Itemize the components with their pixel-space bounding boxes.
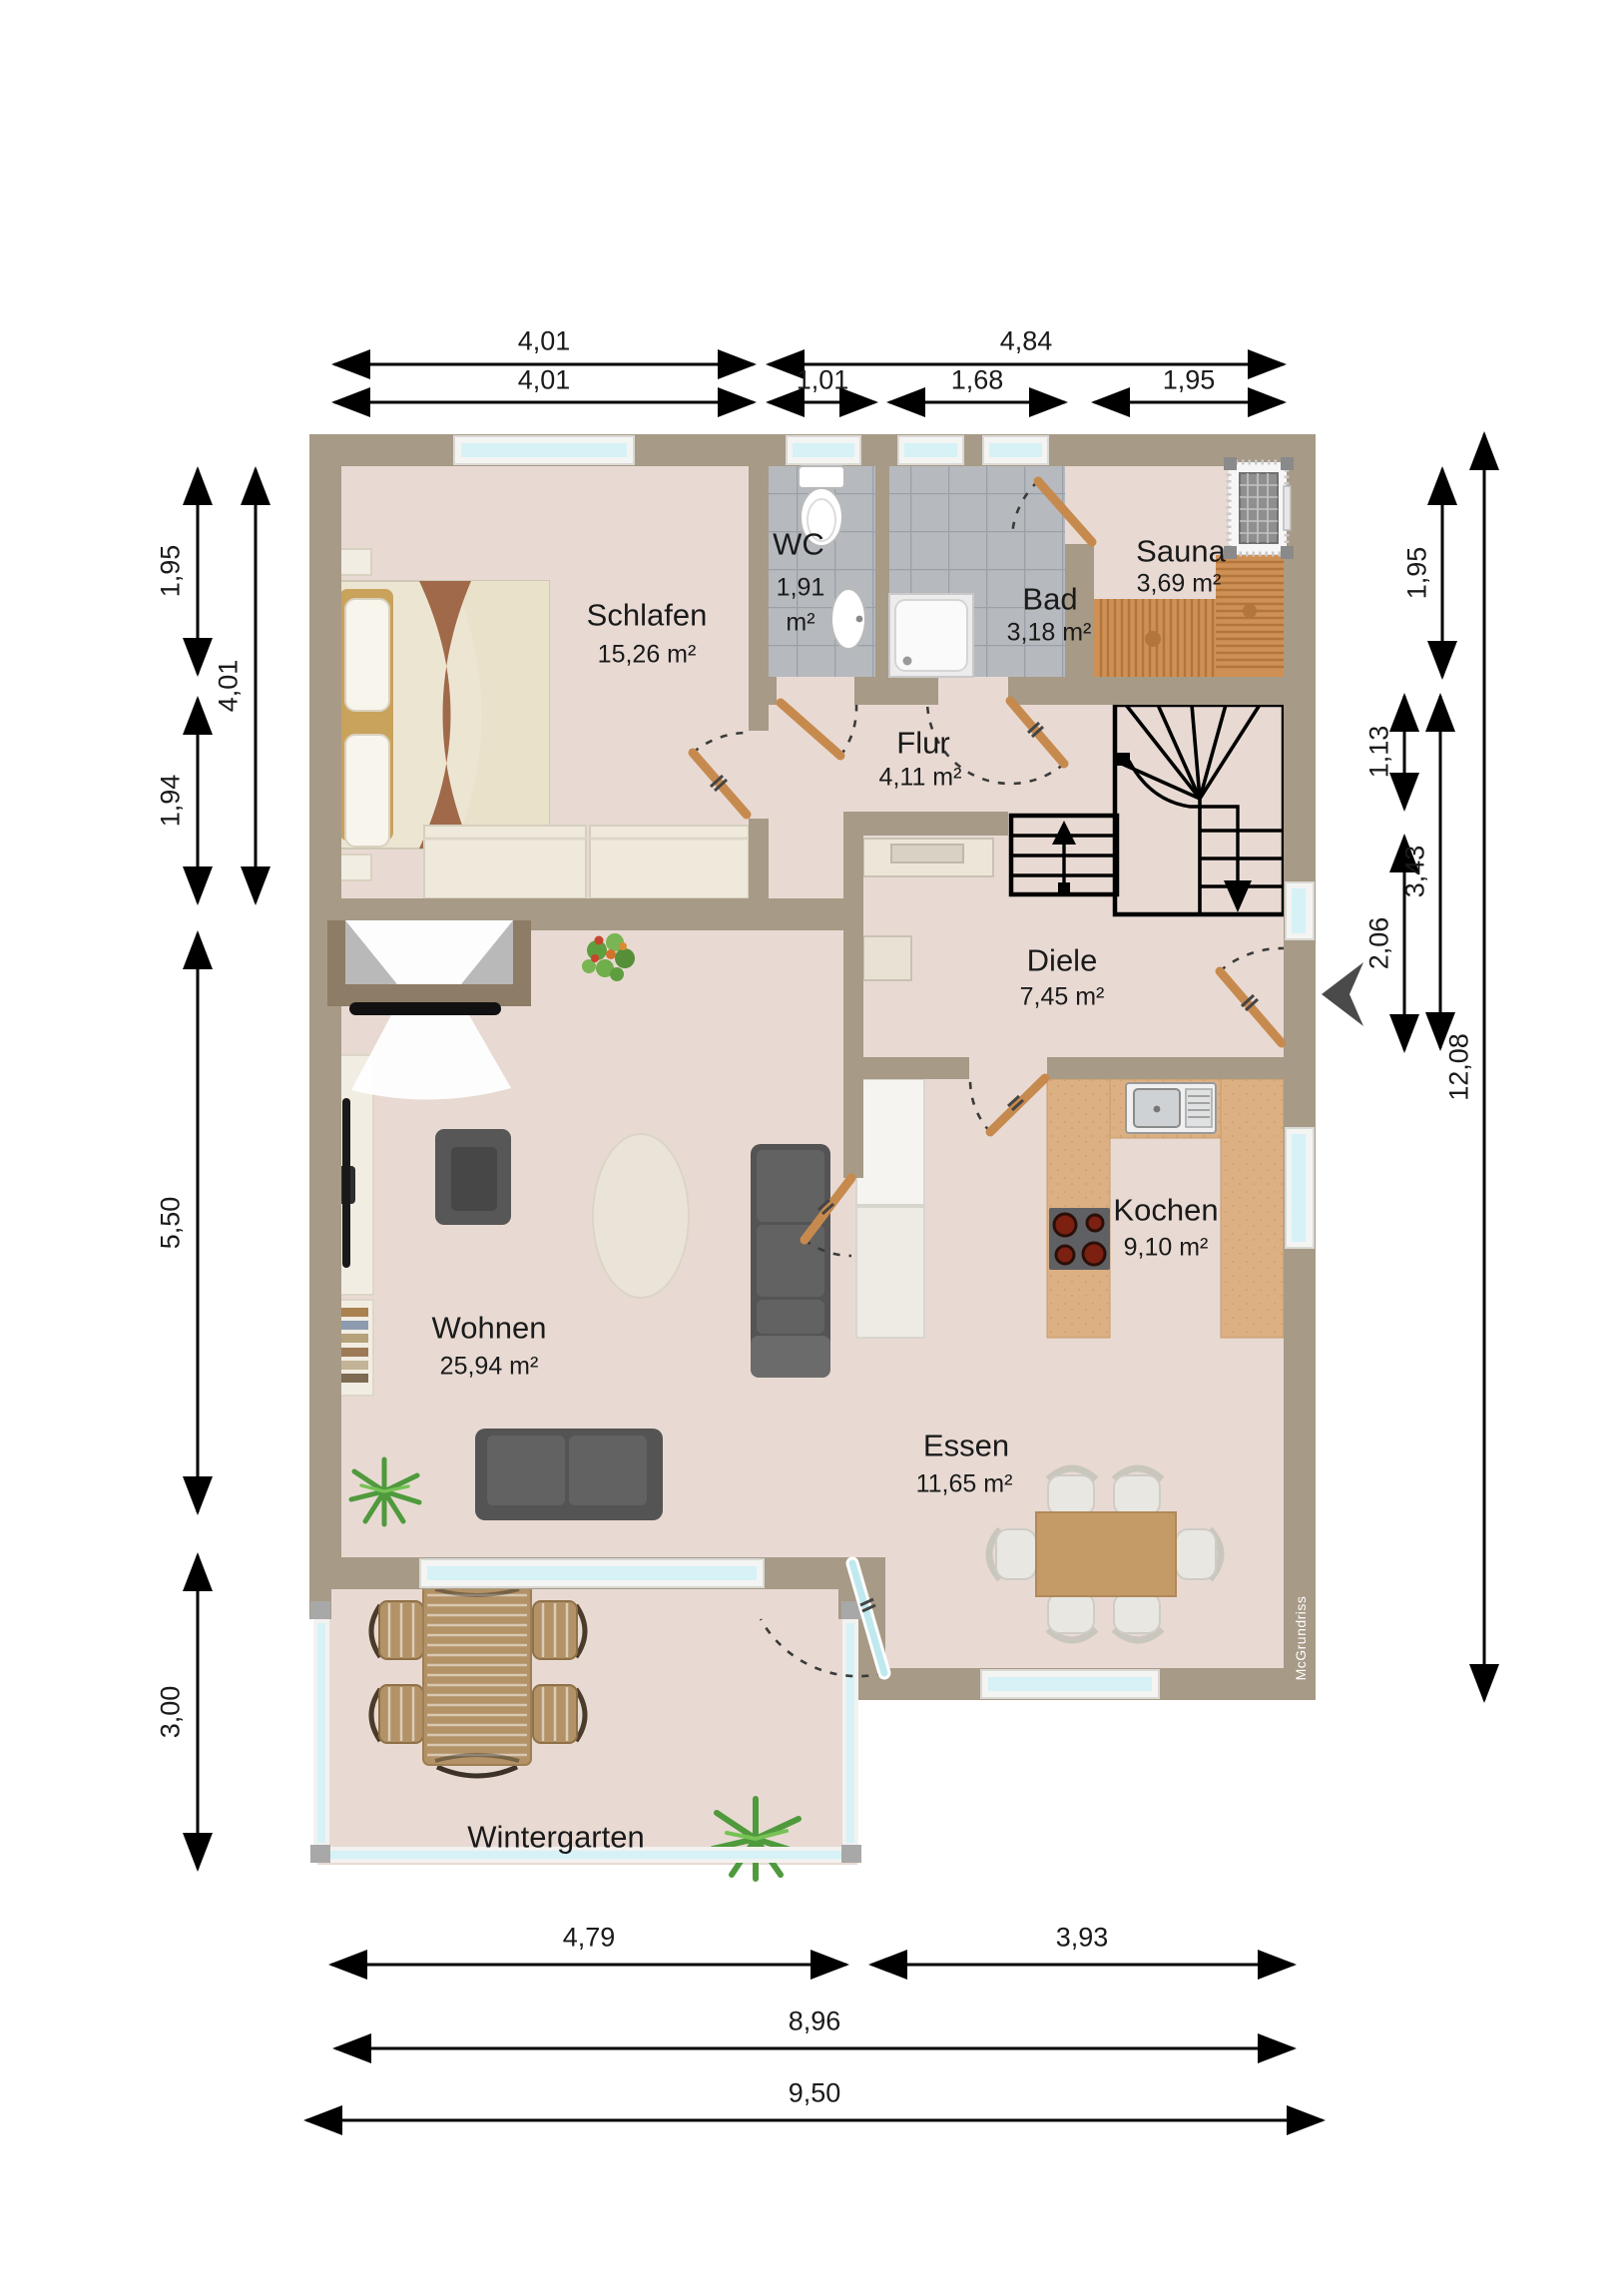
dim-top2-d: 1,95 xyxy=(1163,367,1216,394)
hand-basin xyxy=(831,589,865,649)
window xyxy=(981,1670,1159,1698)
window xyxy=(983,436,1048,464)
dim-top2-b: 1,01 xyxy=(797,367,849,394)
room-area-unit-wc: m² xyxy=(786,611,814,636)
dim-right-206: 2,06 xyxy=(1366,917,1393,970)
dim-right-343: 3,43 xyxy=(1402,846,1429,898)
room-area-schlafen: 15,26 m² xyxy=(598,643,697,668)
room-area-essen: 11,65 m² xyxy=(916,1472,1013,1497)
armchair xyxy=(435,1129,511,1225)
sauna-heater xyxy=(1224,457,1294,559)
dim-left-300: 3,00 xyxy=(158,1686,185,1739)
dim-top2-c: 1,68 xyxy=(951,367,1004,394)
dim-left-194: 1,94 xyxy=(158,775,185,828)
window xyxy=(420,1559,764,1587)
fridge-cabinet xyxy=(856,1079,924,1338)
window xyxy=(787,436,860,464)
window xyxy=(898,436,963,464)
sofa-large xyxy=(751,1144,830,1378)
room-label-diele: Diele xyxy=(1027,945,1098,976)
room-area-wohnen: 25,94 m² xyxy=(440,1355,539,1380)
dim-right-1208: 12,08 xyxy=(1446,1033,1473,1101)
garden-chair xyxy=(533,1685,585,1743)
room-label-wintergarten: Wintergarten xyxy=(467,1822,644,1853)
dim-right-113: 1,13 xyxy=(1366,726,1393,779)
dim-bottom-479: 4,79 xyxy=(563,1925,616,1952)
watermark: McGrundriss xyxy=(1294,1596,1308,1681)
room-label-schlafen: Schlafen xyxy=(587,600,708,631)
room-label-wohnen: Wohnen xyxy=(432,1313,547,1344)
room-label-kochen: Kochen xyxy=(1113,1195,1218,1226)
room-label-wc: WC xyxy=(773,529,824,560)
room-label-sauna: Sauna xyxy=(1136,536,1226,567)
rug xyxy=(593,1134,689,1298)
room-label-bad: Bad xyxy=(1022,584,1077,615)
dim-bottom-393: 3,93 xyxy=(1056,1925,1109,1952)
stove xyxy=(1049,1208,1110,1270)
floorplan-canvas: Schlafen 15,26 m² WC 1,91 m² Bad 3,18 m²… xyxy=(0,0,1623,2296)
dim-left-195: 1,95 xyxy=(158,545,185,598)
entrance-arrow-icon xyxy=(1322,962,1363,1026)
dim-left-401: 4,01 xyxy=(216,660,243,713)
dim-bottom-950: 9,50 xyxy=(789,2080,841,2107)
floorplan-drawing xyxy=(0,0,1623,2296)
garden-chair xyxy=(533,1601,585,1659)
room-area-kochen: 9,10 m² xyxy=(1124,1236,1209,1261)
room-area-bad: 3,18 m² xyxy=(1007,621,1092,646)
room-area-sauna: 3,69 m² xyxy=(1137,572,1222,597)
room-label-flur: Flur xyxy=(896,728,949,759)
room-label-essen: Essen xyxy=(923,1431,1009,1461)
window xyxy=(1286,882,1314,939)
room-area-wc: 1,91 xyxy=(777,576,825,601)
dim-top1-right: 4,84 xyxy=(1000,328,1053,355)
window xyxy=(454,436,634,464)
room-area-diele: 7,45 m² xyxy=(1020,985,1105,1010)
dim-right-195: 1,95 xyxy=(1404,547,1431,600)
dim-left-550: 5,50 xyxy=(158,1197,185,1250)
garden-chair xyxy=(371,1601,423,1659)
dim-bottom-896: 8,96 xyxy=(789,2009,841,2035)
room-area-flur: 4,11 m² xyxy=(879,766,962,791)
dim-top2-a: 4,01 xyxy=(518,367,571,394)
bed xyxy=(337,581,549,849)
dim-top1-left: 4,01 xyxy=(518,328,571,355)
garden-chair xyxy=(371,1685,423,1743)
kitchen-sink xyxy=(1126,1083,1216,1133)
wardrobe xyxy=(424,826,749,898)
window xyxy=(1286,1128,1314,1248)
sofa-two-seat xyxy=(475,1429,663,1520)
shower xyxy=(889,594,973,677)
